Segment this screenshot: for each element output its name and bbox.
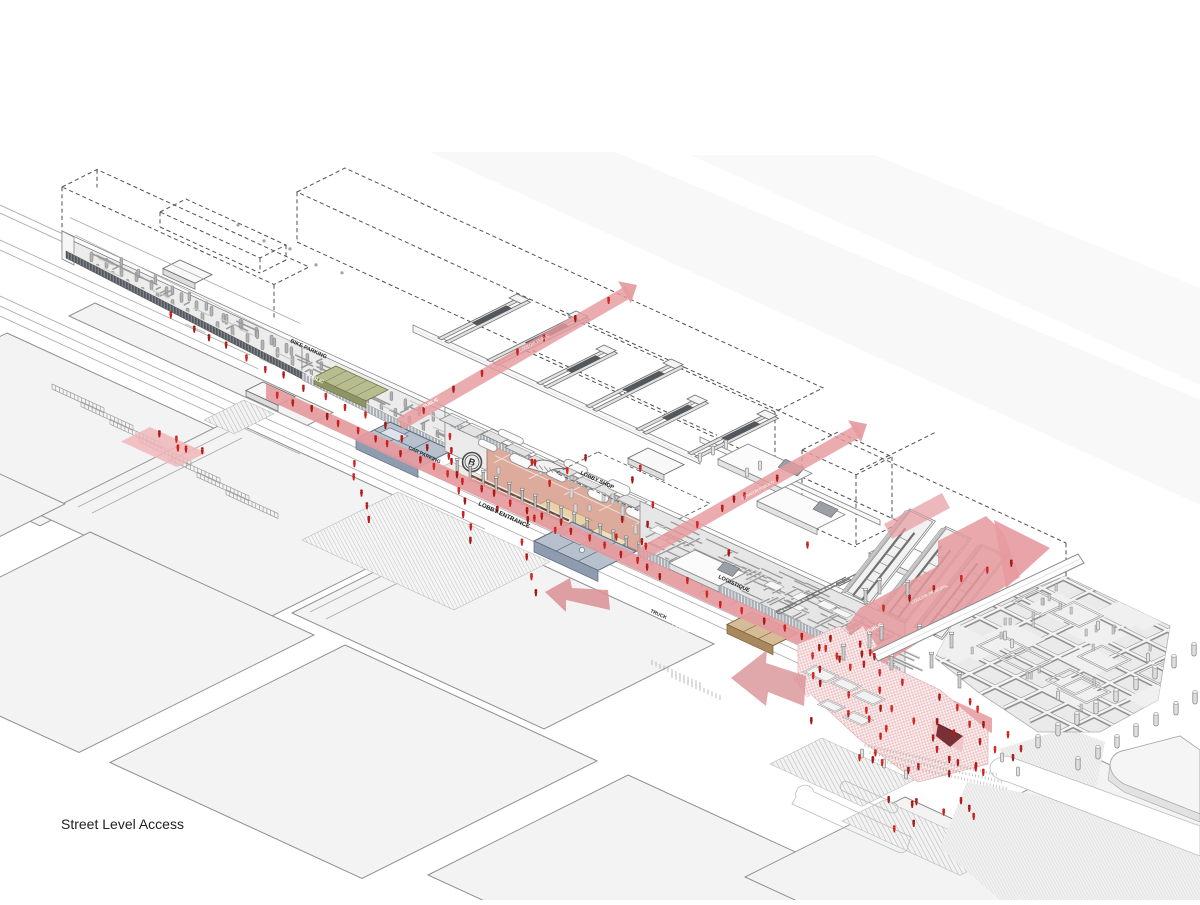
svg-text:Street Level Access: Street Level Access: [61, 816, 184, 832]
